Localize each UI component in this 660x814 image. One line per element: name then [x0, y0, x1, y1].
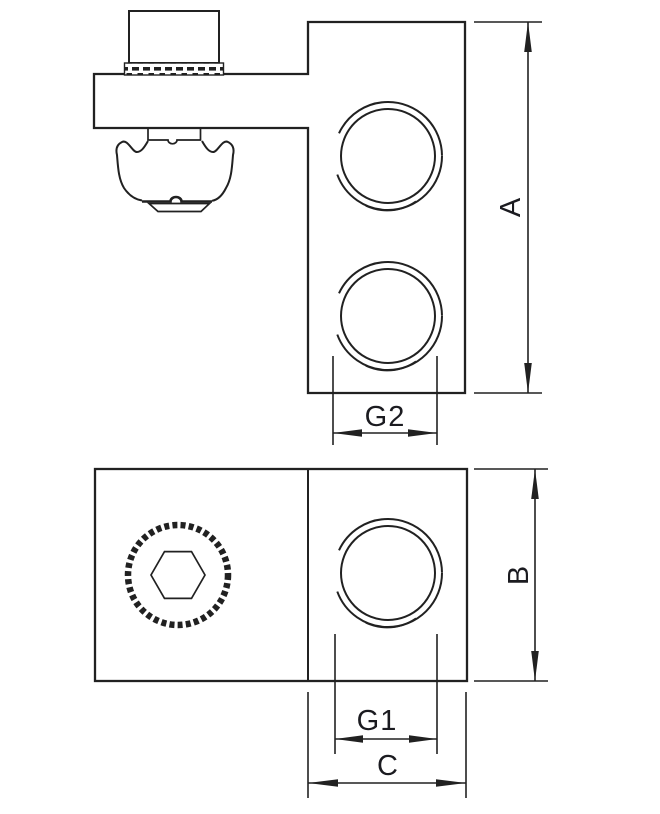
knurled-rim	[128, 525, 228, 625]
arrowhead-left	[333, 429, 362, 437]
arrowhead-right	[436, 779, 466, 787]
body-outline	[94, 22, 465, 393]
hole-inner-circle	[341, 269, 435, 363]
dimension-a: A	[474, 22, 542, 393]
threaded-hole-lower	[334, 262, 442, 371]
clamp-step	[148, 128, 201, 144]
arrowhead-down	[524, 363, 532, 393]
arrowhead-right	[409, 735, 437, 743]
thread-outer-arc	[334, 519, 442, 627]
clamp-jaw-right	[202, 141, 234, 201]
clamp-jaw-left	[116, 141, 148, 201]
knurled-washer	[125, 63, 224, 75]
arrowhead-down	[531, 651, 539, 681]
dimension-g2-label: G2	[365, 401, 406, 433]
dimension-b-label: B	[503, 565, 535, 585]
arrowhead-left	[308, 779, 338, 787]
dimension-a-label: A	[495, 197, 527, 217]
thread-outer-arc	[334, 262, 442, 370]
technical-drawing-canvas: A G2	[0, 0, 660, 814]
socket-screw-head	[128, 525, 228, 625]
bolt-head	[129, 11, 219, 63]
clamp-foot	[149, 204, 210, 212]
arrowhead-right	[408, 429, 437, 437]
clamp-bottom-edge	[142, 197, 212, 202]
arrowhead-up	[524, 22, 532, 52]
dimension-g1-label: G1	[357, 705, 398, 737]
dimension-b: B	[474, 469, 548, 681]
hole-inner-circle	[341, 526, 435, 620]
thread-outer-arc	[334, 102, 442, 210]
threaded-hole-upper	[334, 102, 442, 211]
arrowhead-up	[531, 469, 539, 499]
threaded-hole-front	[334, 519, 442, 628]
dimension-g1: G1	[335, 634, 437, 754]
top-view	[94, 11, 465, 393]
hex-socket	[151, 552, 205, 599]
drawing-svg: A G2	[0, 0, 660, 814]
dimension-c-label: C	[377, 750, 399, 782]
hole-inner-circle	[341, 109, 435, 203]
bottom-view	[95, 469, 467, 681]
